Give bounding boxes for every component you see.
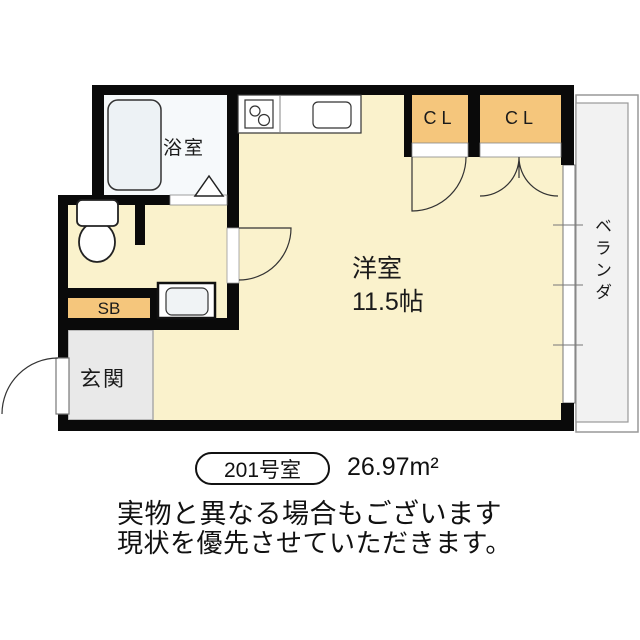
closet1-threshold [412, 143, 468, 157]
wall-segment [92, 85, 574, 95]
room-number-badge: 201号室 [195, 452, 330, 485]
front-door-swing [2, 358, 58, 414]
wall-segment [561, 403, 574, 431]
washing-machine-icon [166, 288, 208, 315]
closet1-label: CL [412, 108, 468, 129]
wall-segment [468, 95, 480, 157]
bathtub-icon [108, 100, 161, 190]
stove-burner-icon [250, 106, 260, 116]
sliding-window [563, 165, 575, 403]
closet2-label: CL [482, 108, 561, 129]
entrance-label: 玄関 [80, 363, 126, 393]
floor-plan-page: 浴室 CL CL 洋室 11.5帖 SB 玄関 ベランダ 201号室 26.97… [0, 0, 640, 640]
western-room-name: 洋室 [352, 253, 424, 286]
toilet-bowl-icon [79, 222, 115, 262]
disclaimer-line2: 現状を優先させていただきます。 [117, 523, 512, 560]
wall-segment [58, 195, 68, 358]
wall-segment [58, 288, 158, 298]
main-room-floor-extension [153, 330, 239, 420]
wall-segment [58, 420, 574, 431]
room-door-opening [227, 228, 239, 283]
wall-segment [135, 205, 145, 245]
wall-segment [404, 95, 412, 157]
stove-burner-icon [259, 115, 270, 126]
western-room-size: 11.5帖 [352, 286, 424, 319]
wall-segment [561, 85, 574, 165]
floor-area-text: 26.97m² [347, 453, 439, 482]
shoe-box-label: SB [68, 299, 150, 319]
western-room-label: 洋室 11.5帖 [352, 253, 424, 319]
closet2-threshold [480, 143, 561, 157]
bathroom-label: 浴室 [163, 133, 205, 160]
front-door-leaf [56, 358, 69, 414]
wall-segment [227, 85, 239, 228]
kitchen-sink-icon [313, 102, 351, 128]
toilet-tank-icon [77, 200, 118, 226]
balcony-label: ベランダ [589, 217, 614, 305]
wall-segment [58, 318, 239, 330]
wall-segment [92, 85, 104, 195]
room-number-text: 201号室 [224, 454, 301, 484]
